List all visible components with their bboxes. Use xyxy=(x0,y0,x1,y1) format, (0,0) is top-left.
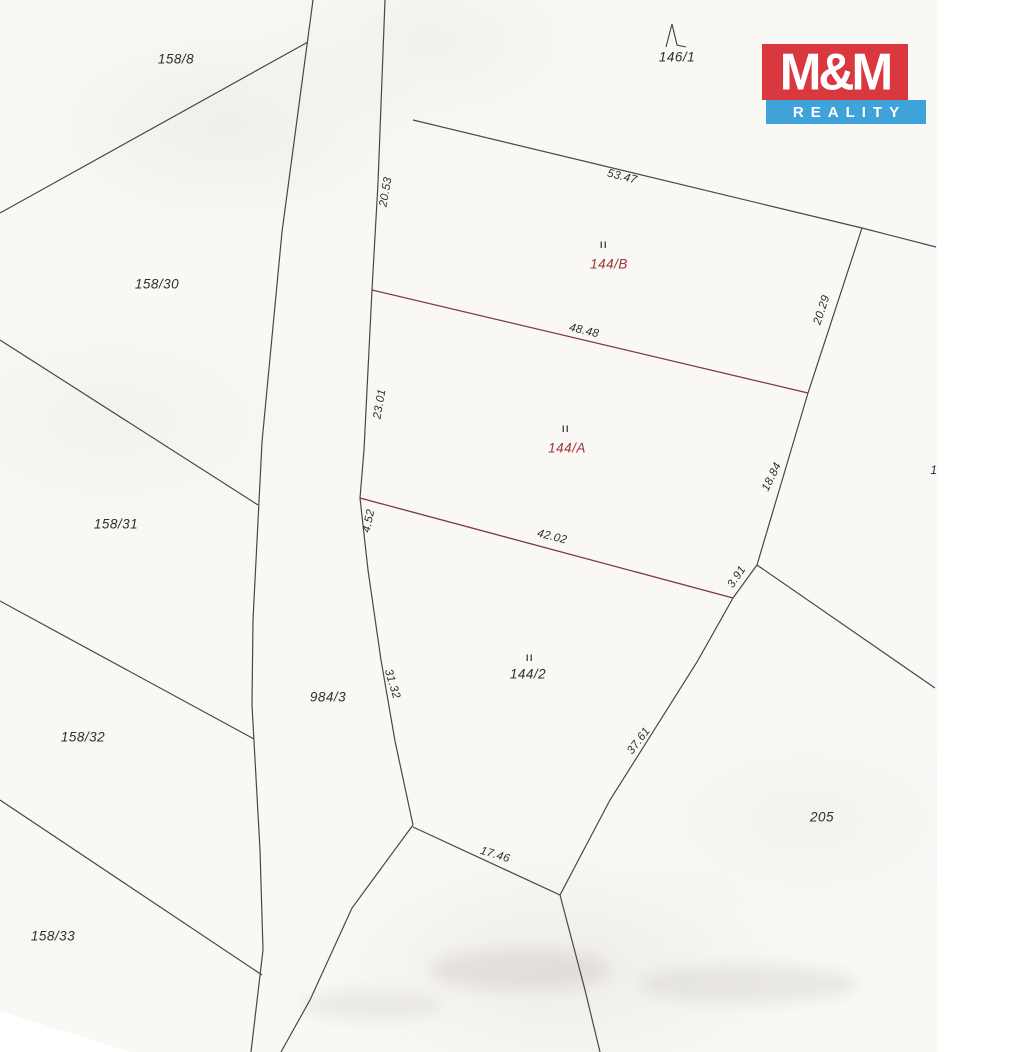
parcel-label: 158/32 xyxy=(61,730,105,745)
road-right-edge xyxy=(360,0,413,825)
logo-text-bottom: REALITY xyxy=(786,105,906,120)
road-left-edge xyxy=(251,0,313,1052)
boundary-158-32-33 xyxy=(0,800,262,975)
boundary-east xyxy=(733,228,862,598)
logo-red-box: M&M xyxy=(762,44,908,100)
parcel-boundaries-linework xyxy=(0,0,1024,1052)
parcel-label: 158/30 xyxy=(135,277,179,292)
boundary-158-31-32 xyxy=(0,601,254,739)
parcel-label: 158/31 xyxy=(94,517,138,532)
parcel-label: 158/33 xyxy=(31,929,75,944)
parcel-label: 146/1 xyxy=(659,50,695,65)
tree-map-symbol xyxy=(666,24,686,47)
cadastral-map-screenshot: 158/8146/1158/30158/31158/32158/33984/32… xyxy=(0,0,1024,1052)
road-right-edge-lower xyxy=(281,825,413,1052)
boundary-north xyxy=(413,120,936,247)
parcel-label: 144/B xyxy=(590,257,628,272)
logo-text-top: M&M xyxy=(780,46,890,98)
new-division-line-144A-144-2 xyxy=(360,498,733,598)
landuse-symbol: II xyxy=(600,240,608,250)
boundary-158-30-31 xyxy=(0,340,258,505)
parcel-label: 144/2 xyxy=(510,667,546,682)
parcel-label: 158/8 xyxy=(158,52,194,67)
boundary-south xyxy=(560,895,600,1052)
landuse-symbol: II xyxy=(562,424,570,434)
boundary-to-east-edge xyxy=(757,565,935,688)
boundary-37-61 xyxy=(560,598,733,895)
new-division-line-144B-144A xyxy=(372,290,808,393)
boundary-17-46 xyxy=(413,827,560,895)
parcel-label: 205 xyxy=(810,810,834,825)
parcel-label: 144/A xyxy=(548,441,586,456)
boundary-158-8 xyxy=(0,42,308,213)
edge-parcel-label: 1 xyxy=(930,463,937,477)
logo-blue-bar: REALITY xyxy=(766,100,926,124)
mm-reality-logo: M&M REALITY xyxy=(762,44,928,124)
parcel-label: 984/3 xyxy=(310,690,346,705)
landuse-symbol: II xyxy=(526,653,534,663)
